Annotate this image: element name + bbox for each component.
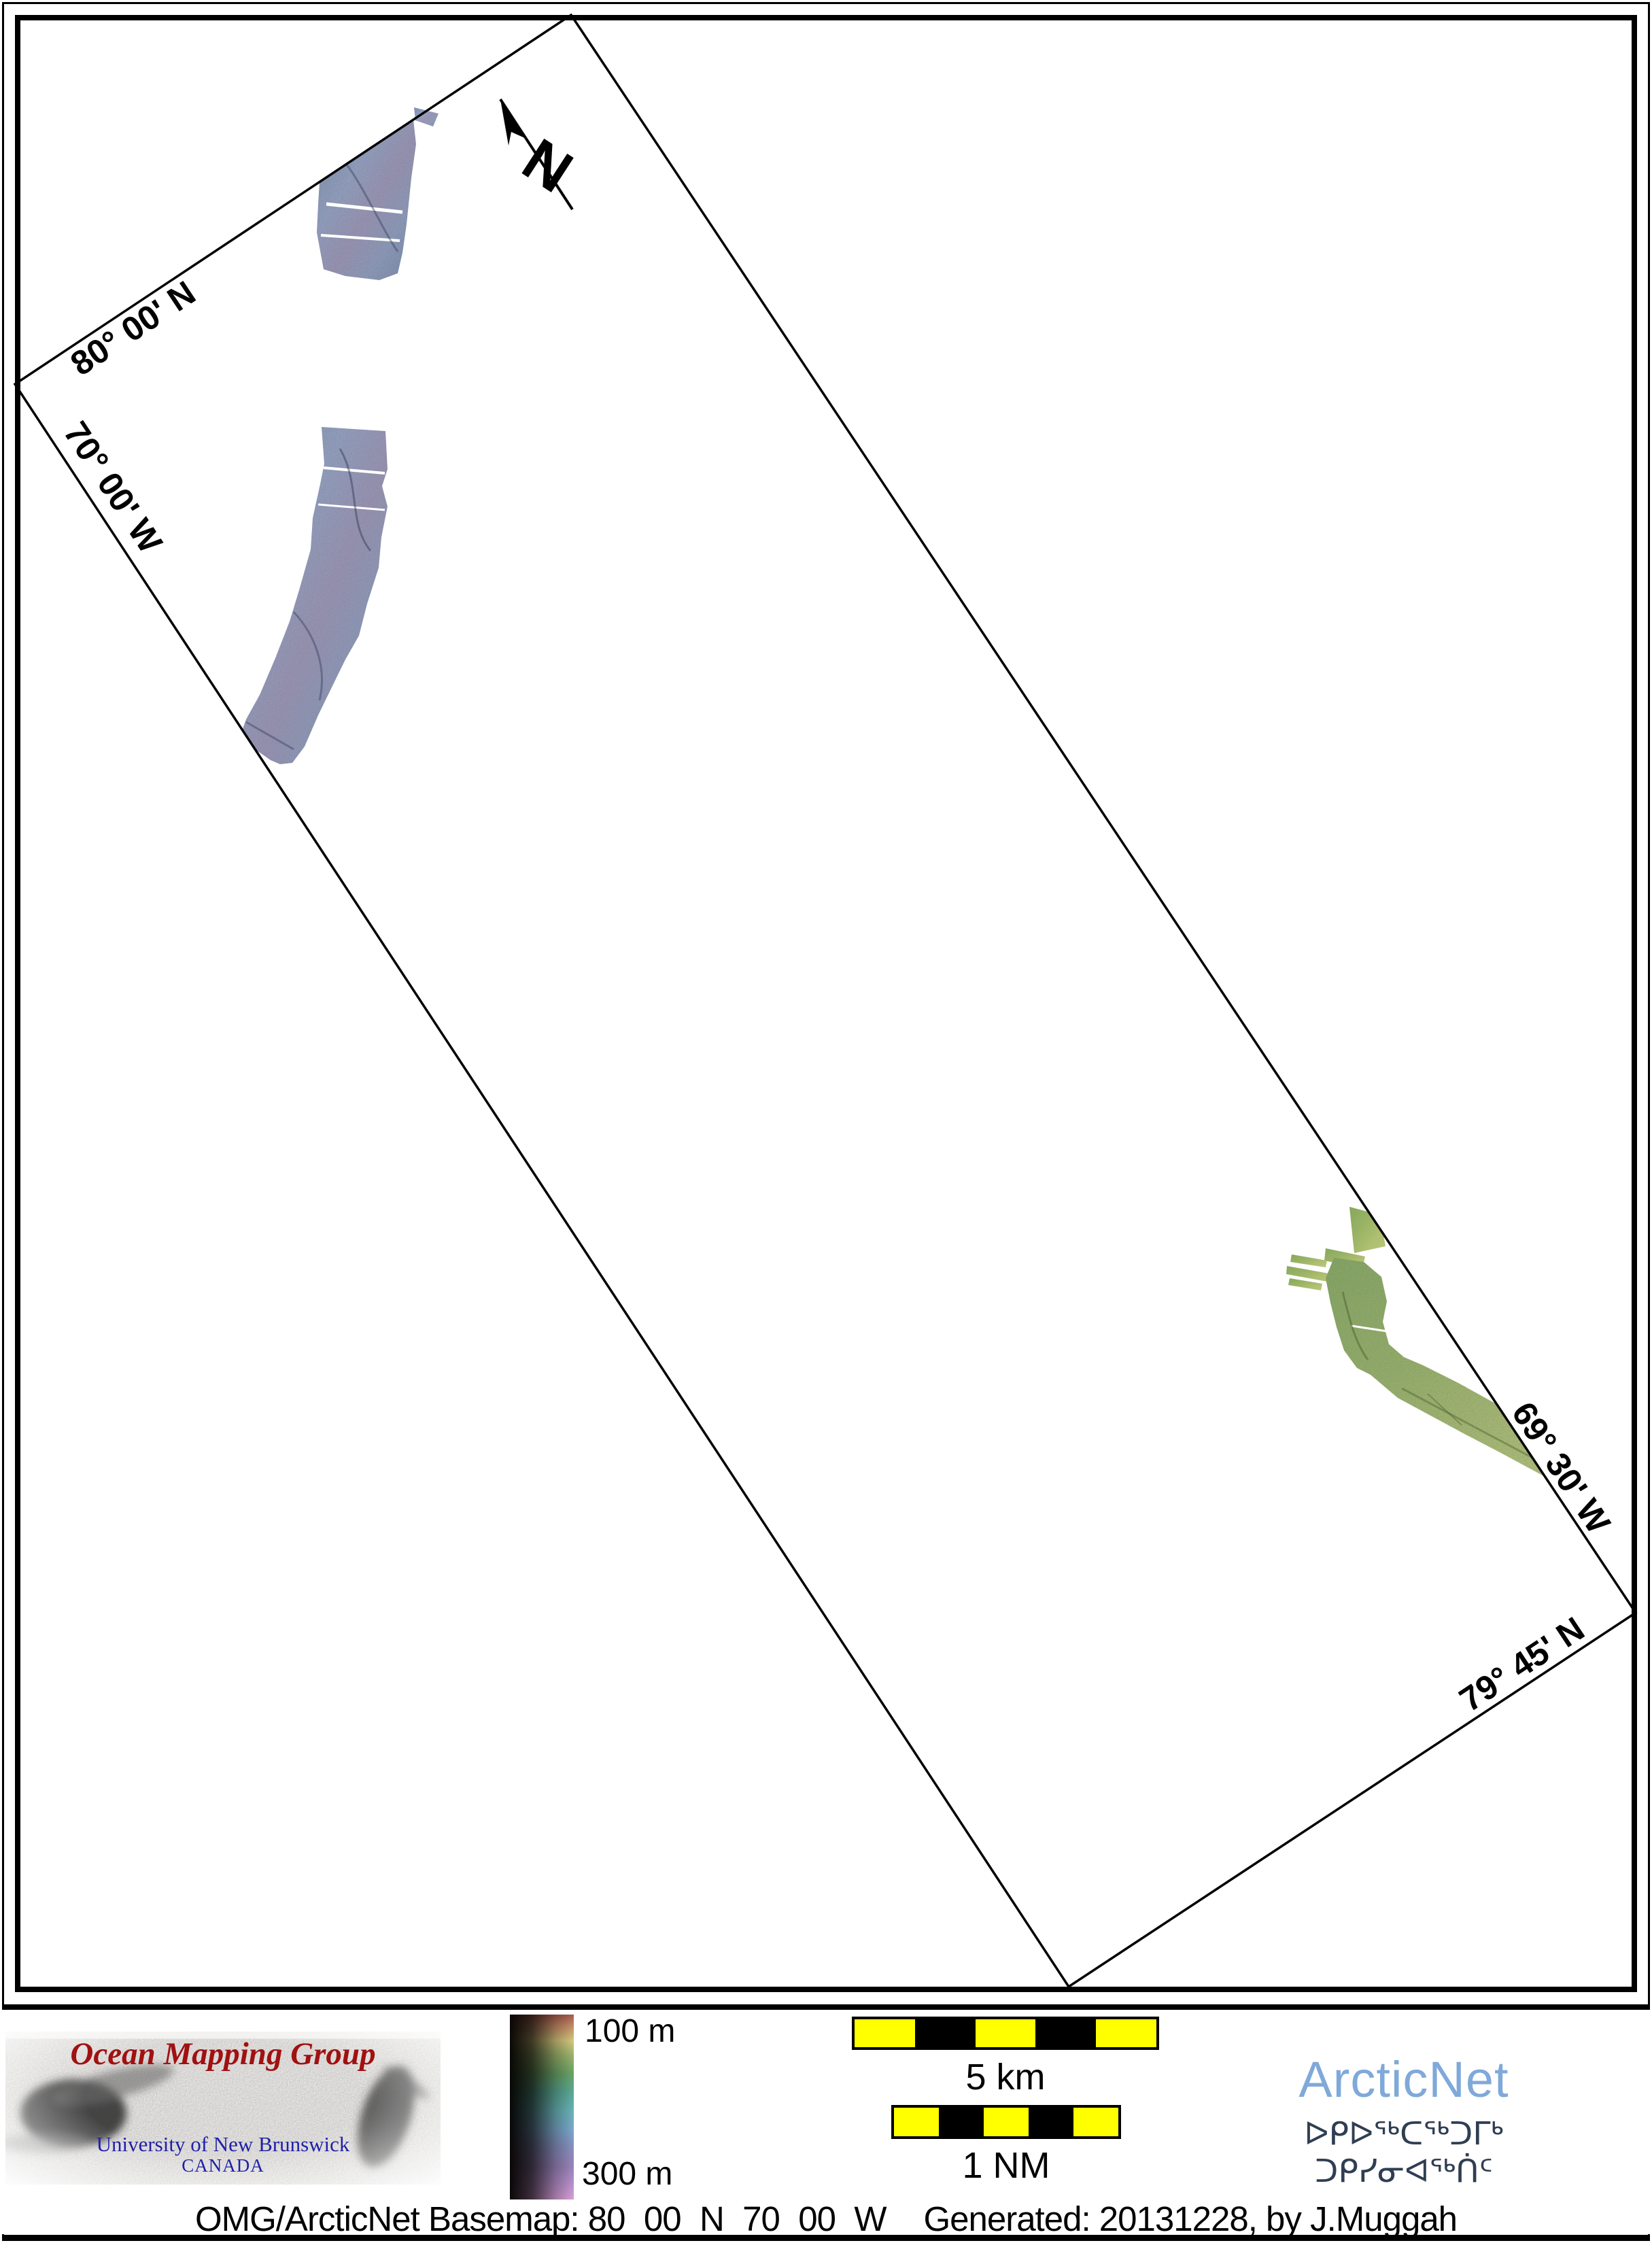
depth-colorbar bbox=[510, 2015, 574, 2199]
depth-scale-bottom-label: 300 m bbox=[582, 2155, 672, 2193]
logo-country: CANADA bbox=[5, 2155, 441, 2176]
scalebar-segment bbox=[1035, 2019, 1096, 2047]
omg-logo: Ocean Mapping Group University of New Br… bbox=[5, 2032, 441, 2185]
scalebar-nm bbox=[891, 2105, 1121, 2139]
logo-university: University of New Brunswick bbox=[5, 2132, 441, 2157]
footer-caption: OMG/ArcticNet Basemap: 80_00_N_70_00_WGe… bbox=[0, 2199, 1652, 2239]
legend-top-divider bbox=[3, 2004, 1649, 2010]
depth-scale-top-label: 100 m bbox=[585, 2013, 675, 2050]
scalebar-segment bbox=[855, 2019, 915, 2047]
basemap-name: OMG/ArcticNet Basemap: 80_00_N_70_00_W bbox=[195, 2199, 887, 2238]
scalebar-segment bbox=[984, 2108, 1029, 2136]
scalebar-segment bbox=[1073, 2108, 1118, 2136]
scalebar-segment bbox=[1029, 2108, 1073, 2136]
generated-info: Generated: 20131228, by J.Muggah bbox=[923, 2199, 1457, 2238]
logo-title: Ocean Mapping Group bbox=[5, 2036, 441, 2072]
map-canvas: 80° 00' N 70° 00' W 69° 30' W 79° 45' N … bbox=[0, 0, 1652, 2243]
arcticnet-wordmark: ArcticNet bbox=[1224, 2051, 1584, 2108]
scalebar-nm-label: 1 NM bbox=[891, 2144, 1121, 2187]
arcticnet-brand: ArcticNet ᐅᑭᐅᖅᑕᖅᑐᒥᒃ ᑐᑭᓯᓂᐊᖅᑏᑦ bbox=[1224, 2051, 1584, 2190]
arcticnet-inuktitut: ᐅᑭᐅᖅᑕᖅᑐᒥᒃ ᑐᑭᓯᓂᐊᖅᑏᑦ bbox=[1224, 2115, 1584, 2190]
scalebar-segment bbox=[894, 2108, 939, 2136]
scalebar-segment bbox=[915, 2019, 976, 2047]
scalebar-km-label: 5 km bbox=[852, 2056, 1159, 2098]
scalebar-km bbox=[852, 2017, 1159, 2050]
scalebar-segment bbox=[939, 2108, 984, 2136]
scalebar-segment bbox=[976, 2019, 1036, 2047]
map-frame-border bbox=[18, 18, 1634, 1989]
scalebar-segment bbox=[1096, 2019, 1156, 2047]
